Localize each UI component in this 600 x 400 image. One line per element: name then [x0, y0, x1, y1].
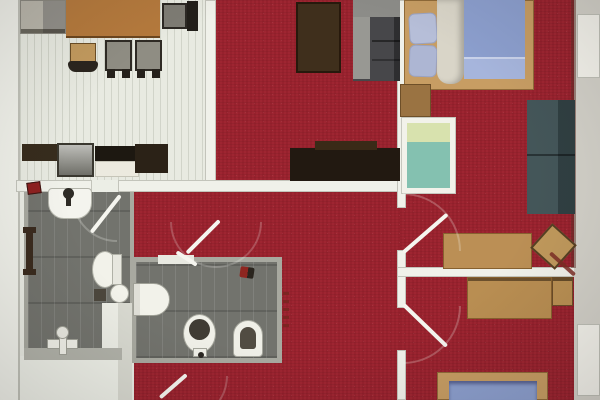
bed1-frame — [404, 0, 534, 90]
round-stool — [110, 284, 129, 303]
kitchen-stove — [57, 143, 94, 177]
round-basin-base — [193, 348, 207, 357]
desk-chair-bedroom2 — [552, 277, 573, 306]
desk-chair-bedroom1-backrail — [549, 251, 576, 276]
kitchen-floor — [20, 0, 208, 184]
dresser — [400, 84, 431, 117]
bedroom2-carpet — [400, 275, 578, 400]
crib-pillow — [407, 123, 450, 142]
door-bottom-hall-panel — [159, 373, 188, 399]
bed1-duvet-roll — [437, 0, 464, 84]
toilet-tank-large-bath — [112, 254, 122, 285]
sofa-back-band — [353, 0, 400, 17]
kitchen-counter-white — [95, 161, 139, 177]
living-room-carpet — [214, 0, 400, 184]
wall-center-horizontal-right — [118, 180, 408, 192]
window-right-top — [577, 14, 600, 78]
door-bedroom2-panel — [402, 303, 448, 348]
small-red-accessory — [239, 266, 254, 279]
sofa-body — [353, 0, 400, 81]
sink-faucet — [63, 188, 74, 199]
door-bottom-hall-swing-arc — [138, 331, 228, 400]
dining-chair-east-back — [187, 1, 198, 31]
bottom-left-floor — [0, 356, 122, 400]
shower-stem — [59, 329, 67, 355]
sofa-shadow-edge — [394, 17, 400, 81]
wall-center-horizontal-left — [16, 180, 92, 192]
bathtub-small-bath — [133, 283, 170, 316]
bathroom-large-door-gap — [92, 180, 118, 192]
sofa-seam-a — [372, 40, 400, 42]
floor-plan — [0, 0, 600, 400]
bathroom-large-bottom-wall — [24, 348, 122, 360]
tv-center-piece — [315, 141, 377, 150]
kitchen-cooktop — [95, 146, 135, 161]
dining-chair-west-seat — [70, 43, 96, 64]
bathroom-large-nook-floor — [102, 303, 118, 356]
wall-bedrooms-vertical-b — [397, 250, 406, 308]
toilet-bowl-large-bath — [92, 251, 118, 288]
door-bedroom2-swing-arc — [345, 248, 461, 364]
desk-bedroom1 — [443, 233, 532, 269]
backdrop — [0, 0, 600, 400]
towel-rail — [26, 229, 33, 273]
wall-right-shadow-line — [571, 0, 576, 268]
wall-bedrooms-horizontal — [397, 267, 600, 277]
toilet-small-bath — [233, 320, 263, 357]
door-bathroom-large-swing-arc — [72, 152, 162, 242]
laundry-basket — [26, 181, 42, 195]
sideboard — [20, 0, 66, 34]
window-right-bottom — [577, 324, 600, 396]
door-kitchen-hall-panel — [185, 219, 220, 254]
bathroom-large-side-wall — [118, 303, 132, 400]
round-basin — [183, 314, 216, 353]
bathroom-large-tile — [24, 186, 134, 354]
teal-sofa-seam — [527, 154, 575, 156]
door-kitchen-hall-swing-arc — [170, 176, 262, 268]
dining-table — [66, 0, 160, 38]
teal-sofa-back — [558, 100, 575, 214]
sofa-seat-left — [353, 17, 370, 79]
bathroom-sink — [48, 188, 92, 219]
towel-rail-cap-top — [23, 227, 36, 233]
wall-bedrooms-vertical-c — [397, 350, 406, 400]
dining-chair-mid-right — [135, 40, 162, 71]
radiator — [283, 292, 289, 330]
bathroom-small-tile — [131, 257, 282, 363]
sofa-seam-b — [372, 59, 400, 61]
dining-chair-east-seat — [162, 3, 187, 29]
round-basin-drain — [198, 352, 204, 358]
bath-cabinet-box — [94, 289, 106, 301]
towel-rail-cap-bottom — [23, 269, 36, 275]
round-basin-bowl — [189, 319, 210, 340]
chair-mid-left-foot-a — [107, 69, 115, 78]
hallway-carpet — [134, 184, 400, 400]
wall-kitchen-right — [205, 0, 216, 190]
door-bedroom1-panel — [402, 213, 448, 254]
bedroom1-carpet — [400, 0, 578, 270]
kitchen-counter-dark-a — [22, 144, 57, 161]
dining-chair-west-back — [68, 61, 98, 72]
door-bedroom1-swing-arc — [345, 193, 461, 309]
desk-bedroom2 — [467, 277, 552, 319]
teal-sofa — [527, 100, 575, 214]
desk-chair-bedroom1 — [530, 223, 577, 270]
wall-left-outer — [0, 0, 20, 400]
dining-chair-mid-left — [105, 40, 132, 71]
bed2-frame — [437, 372, 548, 400]
bed1-mattress-fold — [464, 57, 525, 79]
coffee-table — [296, 2, 341, 73]
bathroom-small-door-gap — [158, 255, 194, 264]
door-bathroom-large-panel — [90, 194, 122, 233]
chair-mid-left-foot-b — [122, 69, 130, 78]
bed1-mattress — [464, 0, 525, 79]
bed2-mattress — [449, 381, 537, 400]
crib-blanket — [407, 142, 450, 188]
crib-frame — [401, 117, 456, 194]
toilet-small-bath-seat — [240, 327, 256, 349]
chair-mid-right-foot-a — [137, 69, 145, 78]
shower-head — [56, 326, 69, 339]
tv-unit — [290, 148, 400, 181]
bed1-pillow-b — [408, 45, 437, 78]
photo-vignette — [0, 0, 600, 400]
chair-mid-right-foot-b — [152, 69, 160, 78]
wall-bedrooms-vertical-a — [397, 0, 406, 208]
shower-bar — [47, 339, 78, 349]
door-bathroom-small-panel — [175, 250, 197, 266]
wall-right-outer — [574, 0, 600, 400]
bed1-pillow-a — [408, 12, 438, 44]
sink-faucet-stem — [66, 197, 71, 206]
kitchen-counter-dark-b — [135, 144, 168, 173]
